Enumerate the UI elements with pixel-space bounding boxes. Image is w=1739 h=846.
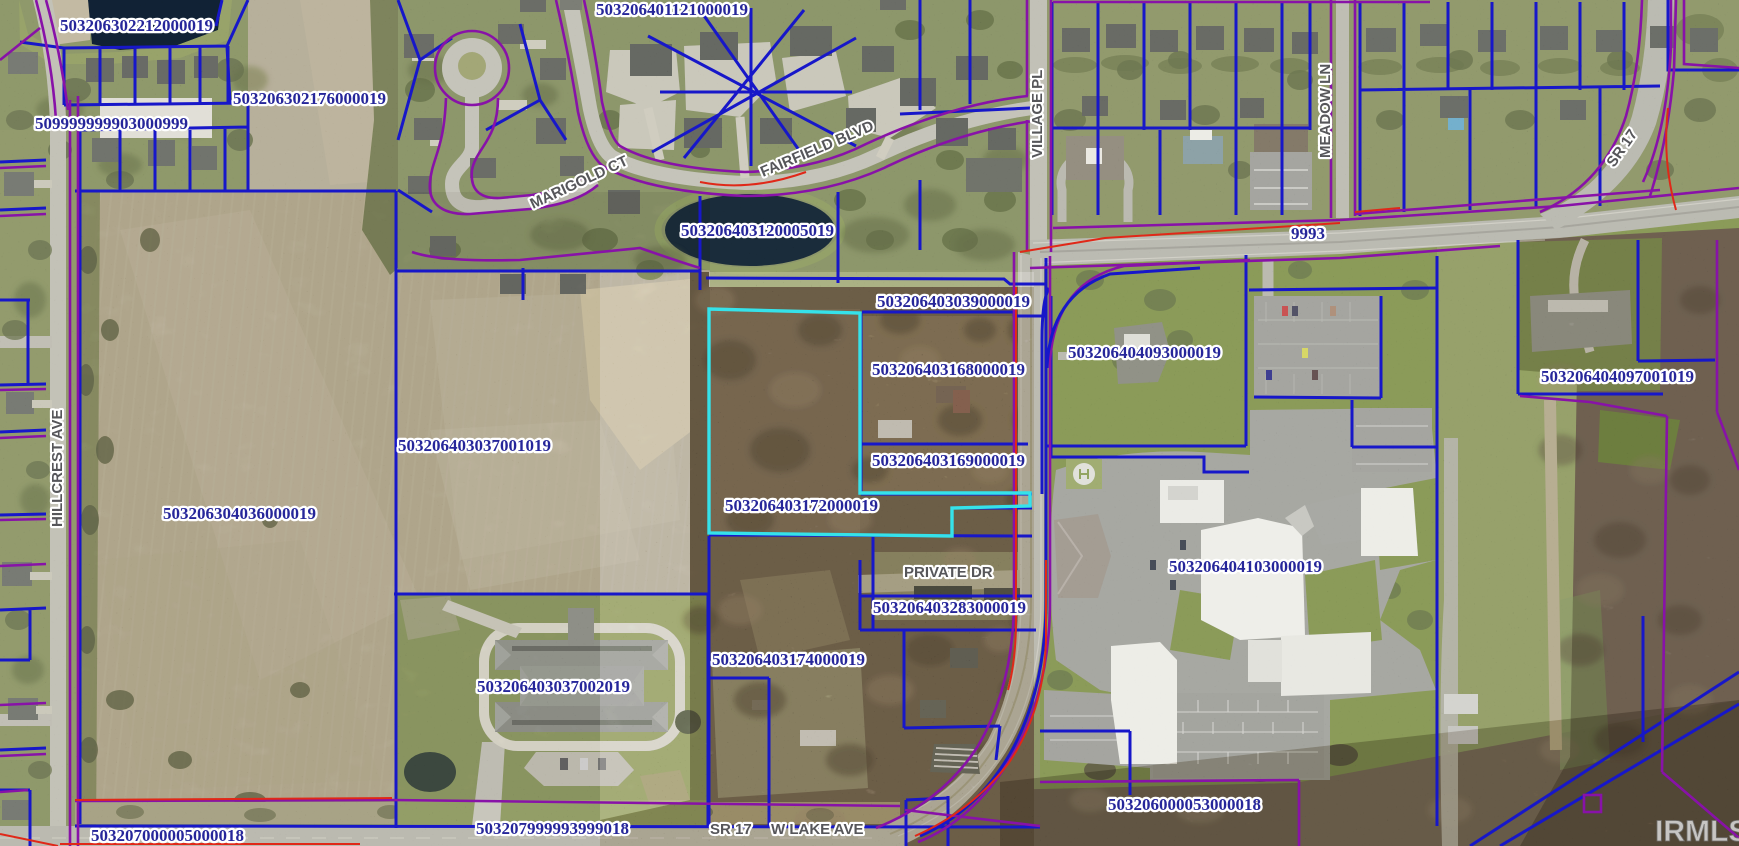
svg-text:509999999903000999: 509999999903000999	[35, 114, 188, 133]
svg-text:503206403168000019: 503206403168000019	[872, 360, 1025, 379]
svg-text:503206403174000019: 503206403174000019	[712, 650, 865, 669]
svg-text:HILLCREST AVE: HILLCREST AVE	[49, 409, 66, 527]
svg-text:503206302212000019: 503206302212000019	[60, 16, 213, 35]
svg-text:503206000053000018: 503206000053000018	[1108, 795, 1261, 814]
svg-text:503206302176000019: 503206302176000019	[233, 89, 386, 108]
svg-text:503206403283000019: 503206403283000019	[873, 598, 1026, 617]
svg-text:9993: 9993	[1291, 224, 1325, 243]
svg-text:W LAKE AVE: W LAKE AVE	[771, 821, 864, 838]
svg-text:503206404103000019: 503206404103000019	[1169, 557, 1322, 576]
svg-text:503206403169000019: 503206403169000019	[872, 451, 1025, 470]
svg-text:IRMLS: IRMLS	[1655, 815, 1739, 846]
svg-text:503206403037002019: 503206403037002019	[477, 677, 630, 696]
svg-text:MEADOW LN: MEADOW LN	[1317, 64, 1334, 158]
svg-text:503207000005000018: 503207000005000018	[91, 826, 244, 845]
svg-text:503207999993999018: 503207999993999018	[476, 819, 629, 838]
svg-text:503206404093000019: 503206404093000019	[1068, 343, 1221, 362]
svg-text:503206403172000019: 503206403172000019	[725, 496, 878, 515]
svg-text:503206404097001019: 503206404097001019	[1541, 367, 1694, 386]
svg-text:SR 17: SR 17	[710, 821, 752, 838]
svg-text:PRIVATE DR: PRIVATE DR	[904, 564, 993, 581]
svg-text:VILLAGE PL: VILLAGE PL	[1029, 70, 1046, 158]
svg-text:503206403120005019: 503206403120005019	[681, 221, 834, 240]
svg-text:503206403037001019: 503206403037001019	[398, 436, 551, 455]
svg-text:503206403039000019: 503206403039000019	[877, 292, 1030, 311]
svg-text:503206304036000019: 503206304036000019	[163, 504, 316, 523]
svg-text:503206401121000019: 503206401121000019	[596, 0, 748, 19]
